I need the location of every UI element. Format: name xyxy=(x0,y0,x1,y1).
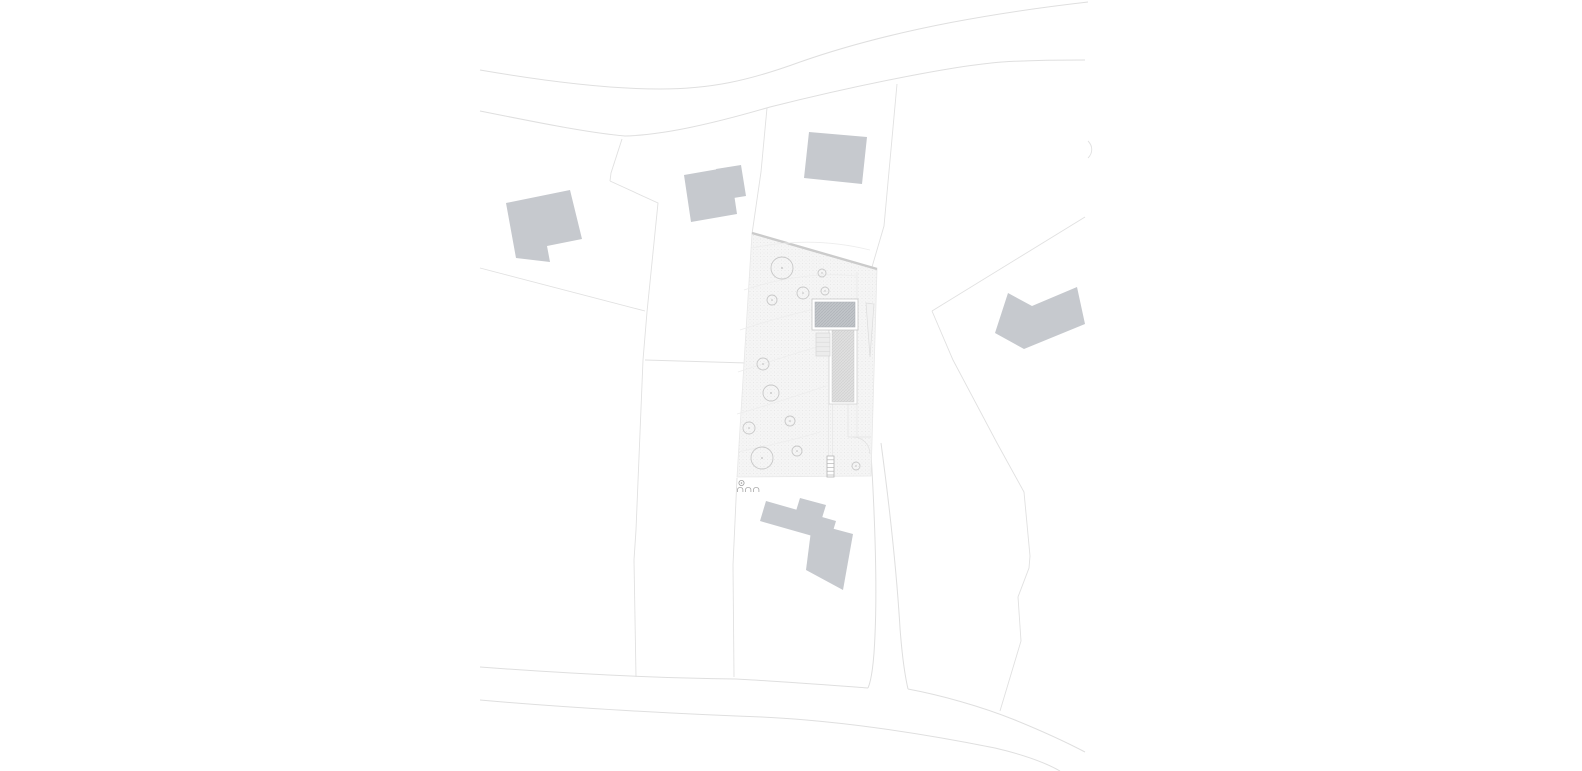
road-south-upper-edge-west xyxy=(480,667,868,688)
marker-arch xyxy=(738,487,743,492)
tree-center-dot xyxy=(781,267,783,269)
tree-center-dot xyxy=(824,290,825,291)
boundary-south-west xyxy=(733,478,737,677)
neighbor-building-north xyxy=(804,132,867,184)
site-marker xyxy=(738,480,759,492)
marker-arch xyxy=(746,487,751,492)
boundary-site-north xyxy=(752,108,767,234)
boundary-mid-horizontal xyxy=(645,360,747,363)
marker-dot xyxy=(741,482,743,484)
driveway-west-edge xyxy=(868,453,876,688)
tree-center-dot xyxy=(761,457,763,459)
boundary-left-horizontal xyxy=(480,268,645,311)
plan-svg xyxy=(0,0,1582,771)
neighbor-building-south-lower xyxy=(806,523,853,590)
road-south-upper-edge-east xyxy=(908,689,1085,752)
tree-center-dot xyxy=(821,272,822,273)
driveway-east-edge xyxy=(881,443,908,689)
road-north-upper-edge xyxy=(480,2,1088,89)
boundary-north-east xyxy=(872,84,897,267)
tree-center-dot xyxy=(802,292,804,294)
building-stair-block xyxy=(816,333,830,356)
building-roof-hatch xyxy=(815,302,855,327)
neighbor-building-west xyxy=(506,190,582,262)
marker-arch xyxy=(754,487,759,492)
tree-center-dot xyxy=(789,420,791,422)
tree-center-dot xyxy=(771,299,773,301)
boundary-east-curve xyxy=(932,311,1030,711)
boundary-fragment-ne xyxy=(1088,141,1092,158)
tree-center-dot xyxy=(855,465,856,466)
tree-center-dot xyxy=(770,392,772,394)
tree-center-dot xyxy=(748,427,750,429)
boundary-west-upper xyxy=(610,139,622,181)
tree-center-dot xyxy=(762,363,764,365)
boundary-west-long xyxy=(610,181,658,677)
road-south-lower-edge xyxy=(480,700,1060,771)
exterior-steps xyxy=(827,456,834,477)
tree-center-dot xyxy=(796,450,798,452)
site-plan-page xyxy=(0,0,1582,771)
road-north-lower-edge xyxy=(480,60,1085,136)
neighbor-building-east xyxy=(995,287,1085,349)
building-wing-hatch xyxy=(832,330,854,402)
neighbor-building-mid-annex xyxy=(716,165,746,200)
